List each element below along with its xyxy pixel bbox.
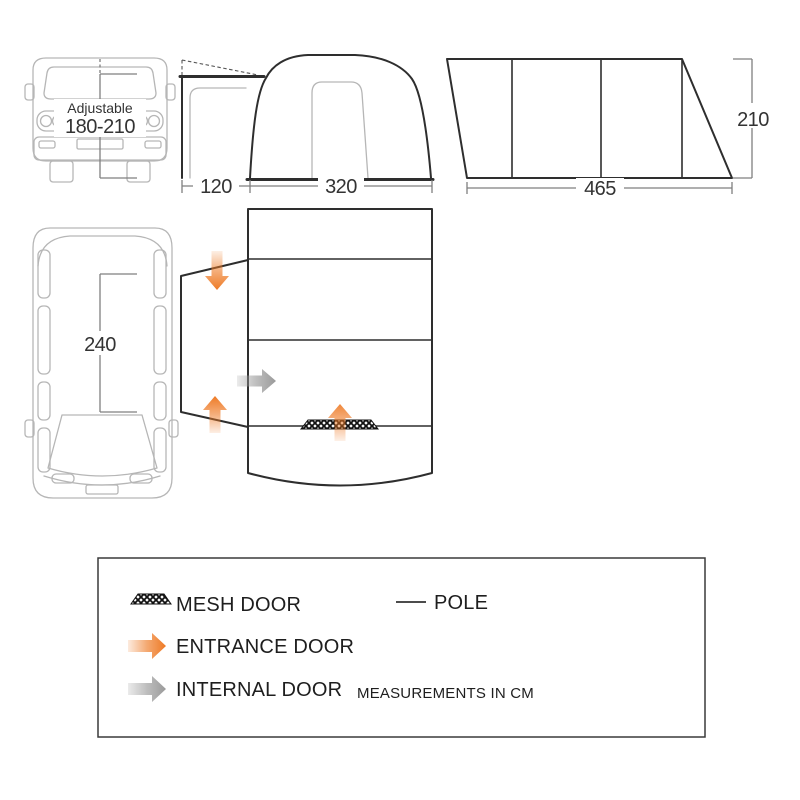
van-indicator-right: [145, 141, 161, 148]
legend: MESH DOOR POLE ENTRANCE DOOR INTERNAL DO…: [98, 558, 705, 737]
tunnel-width-value: 120: [200, 176, 232, 198]
side-length-value: 465: [584, 178, 616, 200]
awning-front-door-outline: [312, 82, 368, 178]
side-outline: [447, 59, 732, 178]
van-indicator-left: [39, 141, 55, 148]
measurements-note: MEASUREMENTS IN CM: [357, 685, 534, 702]
adjustable-tunnel-dashed-line: [182, 60, 258, 77]
van-top-view: 240: [25, 228, 178, 498]
dimension-height: 210: [730, 59, 776, 178]
van-lamp: [41, 116, 52, 127]
awning-front-view: 120 320: [180, 55, 433, 198]
adjustable-label: Adjustable: [67, 100, 133, 116]
van-side-window: [154, 382, 166, 420]
van-wheel-right: [127, 161, 150, 182]
van-side-window: [38, 382, 50, 420]
van-top-body: [33, 228, 172, 498]
tunnel-door-outline: [190, 88, 246, 178]
van-length-value: 240: [84, 334, 116, 356]
van-wheel-left: [50, 161, 73, 182]
awning-dimensions-diagram: Adjustable 180-210 120 320: [0, 0, 800, 800]
legend-pole-label: POLE: [434, 592, 488, 614]
mesh-door-icon: [131, 594, 171, 604]
van-side-window: [154, 250, 166, 298]
adjustable-range-value: 180-210: [65, 116, 135, 138]
legend-entrance-door-label: ENTRANCE DOOR: [176, 636, 354, 658]
awning-dome-outline: [250, 55, 431, 178]
van-lamp: [149, 116, 160, 127]
side-height-value: 210: [737, 109, 769, 131]
van-side-window: [154, 306, 166, 374]
legend-mesh-door-label: MESH DOOR: [176, 594, 301, 616]
awning-floor-plan: [181, 209, 432, 486]
floorplan-main-outline: [248, 209, 432, 486]
awning-side-view: 465 210: [447, 59, 776, 200]
dimension-length: 465: [467, 178, 732, 200]
van-rear-window: [38, 236, 167, 266]
diagram-canvas: Adjustable 180-210 120 320: [0, 0, 800, 800]
van-front-plate: [86, 485, 118, 494]
internal-door-arrow: [237, 369, 276, 393]
van-front-view: Adjustable 180-210: [25, 58, 175, 182]
legend-internal-door-label: INTERNAL DOOR: [176, 679, 342, 701]
van-side-window: [38, 306, 50, 374]
dimension-van-length: 240: [77, 274, 137, 412]
van-mirror-right: [169, 420, 178, 437]
awning-width-value: 320: [325, 176, 357, 198]
entrance-door-arrow-bottom: [203, 396, 227, 433]
entrance-door-arrow-top: [205, 251, 229, 290]
van-windshield-top: [48, 415, 157, 476]
